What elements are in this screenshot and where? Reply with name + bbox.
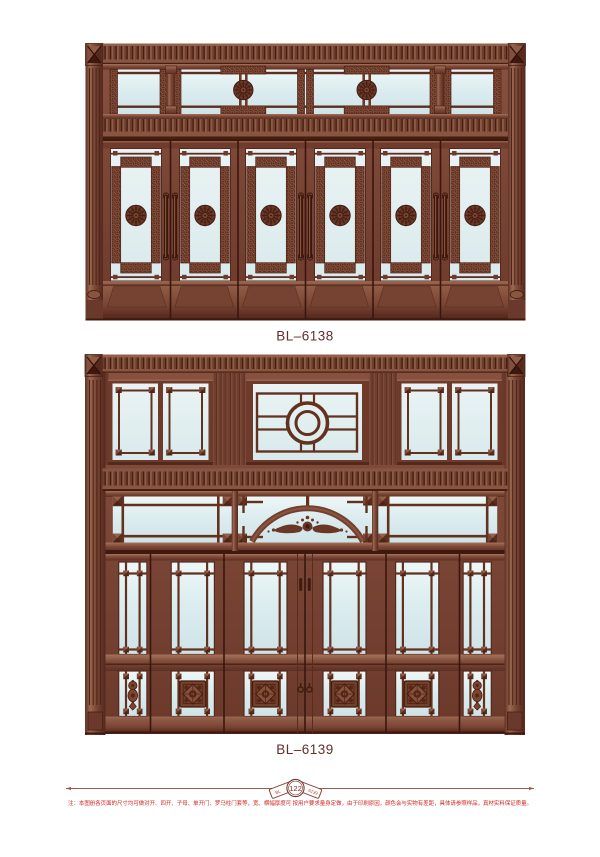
svg-text:BL–6138: BL–6138 [276, 329, 334, 344]
svg-text:BL–6139: BL–6139 [276, 742, 334, 757]
svg-text:注：本图册各页面的尺寸均可做对开、四开、子母、单开门、罗马柱: 注：本图册各页面的尺寸均可做对开、四开、子母、单开门、罗马柱门套等，宽、横幅厚度… [68, 799, 532, 807]
svg-text:122: 122 [289, 784, 302, 793]
